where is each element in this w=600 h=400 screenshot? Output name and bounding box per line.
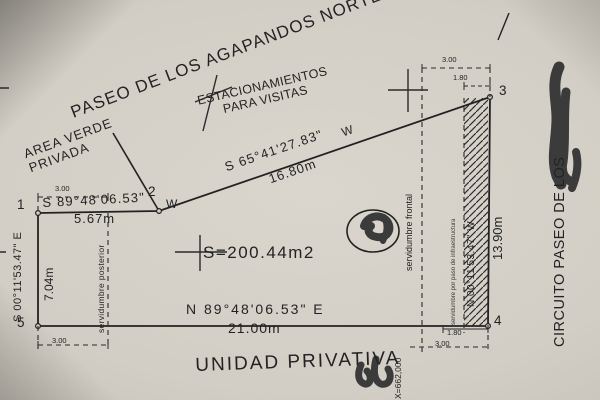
dim-front-easement-top: 3.00 [442, 56, 457, 64]
dim-infrastructure-bottom: 1.80 [447, 329, 462, 337]
street-corner-line [498, 13, 509, 40]
street-name-right: CIRCUITO PASEO DE LOS [552, 157, 568, 347]
front-easement-label: servidumbre frontal [404, 194, 414, 271]
length-left-side: 7.04m [43, 268, 56, 301]
survey-plot-plan: PASEO DE LOS AGAPANDOS NORTE ESTACIONAMI… [0, 0, 600, 400]
lot-area-label: S=200.44m2 [203, 243, 315, 262]
length-top-side: 5.67m [74, 212, 115, 227]
rear-easement-label: servidumbre posterior [97, 245, 107, 334]
dim-front-easement-bottom: 3.00 [435, 340, 450, 348]
bearing-left-side: S 00°11'53.47" E [12, 232, 24, 322]
vertex-2: 2 [148, 184, 156, 199]
bearing-bottom-side: N 89°48'06.53" E [186, 302, 325, 318]
infrastructure-easement-label: servidumbre por paso de infraestructura [451, 219, 458, 325]
length-right-side: 13.90m [491, 217, 506, 260]
vertex-1: 1 [17, 197, 25, 212]
vertex-5: 5 [17, 315, 25, 330]
bearing-right-side: N 00°11'53.47" W [466, 221, 477, 307]
length-bottom-side: 21.00m [228, 321, 281, 337]
vertex-4: 4 [494, 313, 502, 328]
dim-rear-easement-bottom: 3.00 [52, 337, 67, 345]
bearing-top-direction: W [166, 198, 177, 211]
vertex-3: 3 [499, 83, 507, 98]
grid-coordinate-label: X=662,000 [394, 358, 404, 399]
dim-infrastructure-top: 1.80 [453, 74, 468, 82]
dim-rear-easement-top: 3.00 [55, 185, 70, 193]
